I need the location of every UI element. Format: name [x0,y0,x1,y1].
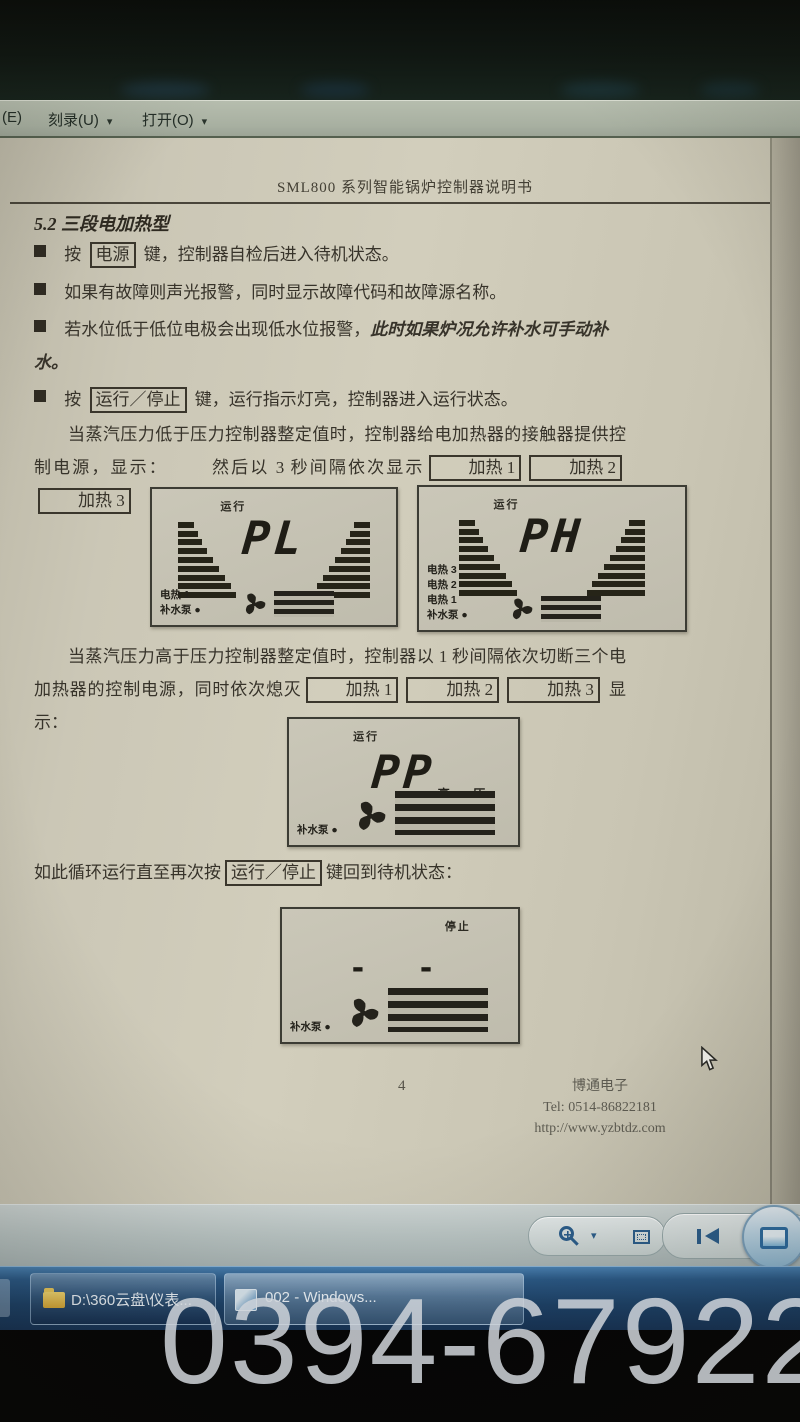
page-edge-shadow [772,138,800,1204]
water-level-bars-right [312,519,370,599]
page-number: 4 [398,1078,406,1095]
bullet-square-icon: ■ [34,283,46,295]
bullet-text: 键，控制器自检后进入待机状态。 [144,245,399,264]
feedpump-indicator: 补水泵 ● [290,1020,331,1035]
lcd-status-label: 运行 [353,728,379,744]
paragraph-loop: 如此循环运行直至再次按运行／停止键回到待机状态： [34,856,654,889]
fan-icon [344,994,382,1032]
menu-item-open-label: 打开(O) [142,112,194,129]
bullet-square-icon: ■ [34,320,46,332]
paragraph-text: 键回到待机状态： [326,863,462,882]
fan-icon [240,590,268,618]
bullet-line: ■ 如果有故障则声光报警，同时显示故障代码和故障源名称。 [34,276,620,309]
bullet-line: ■ 按 运行／停止 键，运行指示灯亮，控制器进入运行状态。 [34,383,620,416]
monitor-bezel-top [0,0,800,100]
taskbar-edge-item[interactable] [0,1279,10,1317]
zoom-dropdown-caret-icon[interactable]: ▾ [591,1229,597,1242]
viewer-toolbar: ▾ [0,1204,800,1266]
photo-of-monitor: (E) 刻录(U)▾ 打开(O)▾ SML800 系列智能锅炉控制器说明书 5.… [0,0,800,1422]
heat2-label: 加热 2 [406,677,499,703]
chevron-down-icon: ▾ [202,115,208,128]
company-tel: Tel: 0514-86822181 [480,1097,720,1118]
menu-item-open[interactable]: 打开(O)▾ [142,109,207,130]
bullet-line: ■ 若水位低于低位电极会出现低水位报警，此时如果炉况允许补水可手动补水。 [34,313,620,379]
feedpump-indicator: 补水泵 ● [427,608,468,623]
heater-louver-icon [388,988,488,1032]
heat1-label: 加热 1 [306,677,399,703]
heater2-indicator: 电热 2 [427,578,468,593]
bullet-text: 如果有故障则声光报警，同时显示故障代码和故障源名称。 [64,283,506,302]
menu-bar: (E) 刻录(U)▾ 打开(O)▾ [0,100,800,138]
slideshow-button[interactable] [742,1205,800,1269]
company-name: 博通电子 [480,1076,720,1097]
mouse-cursor [700,1046,718,1072]
menu-item-partial[interactable]: (E) [2,109,22,126]
heater-louver-icon [274,591,334,617]
zoom-in-icon[interactable] [559,1226,574,1241]
bullet-text: 按 [64,245,81,264]
paragraph-text: 如此循环运行直至再次按 [34,863,221,882]
lcd-panel-pl: 运行 PL 电热 1 补水泵 ● [150,487,398,627]
heater1-indicator: 电热 1 [427,593,468,608]
heater1-indicator: 电热 1 [160,588,201,603]
run-stop-key-label: 运行／停止 [225,860,322,886]
company-url: http://www.yzbtdz.com [480,1118,720,1139]
lcd-panel-pp: 运行 PP 高 压 补水泵 ● [287,717,520,847]
menu-item-burn-label: 刻录(U) [48,112,99,129]
company-footer: 博通电子 Tel: 0514-86822181 http://www.yzbtd… [480,1076,720,1139]
heater3-indicator: 电热 3 [427,563,468,578]
chevron-down-icon: ▾ [107,115,113,128]
document-viewer-canvas: SML800 系列智能锅炉控制器说明书 5.2 三段电加热型 ■ 按 电源 键，… [0,138,800,1204]
screen-reflection [560,82,640,98]
run-stop-key-label: 运行／停止 [90,387,187,413]
menu-item-burn[interactable]: 刻录(U)▾ [48,109,112,130]
previous-icon[interactable] [697,1228,723,1246]
heat2-label: 加热 2 [529,455,622,481]
bullet-text: 若水位低于低位电极会出现低水位报警， [64,320,370,339]
bullet-text: 键，运行指示灯亮，控制器进入运行状态。 [195,390,518,409]
lcd-indicator-labels: 电热 3 电热 2 电热 1 补水泵 ● [427,563,468,623]
screen-reflection [700,82,760,98]
bullet-square-icon: ■ [34,390,46,402]
feedpump-indicator: 补水泵 ● [160,603,201,618]
water-level-bars-left [178,519,236,599]
paragraph-text: 然后以 3 秒间隔依次显示 [210,458,425,477]
heat1-label: 加热 1 [429,455,522,481]
feedpump-indicator: 补水泵 ● [297,823,338,838]
zoom-controls-group: ▾ [528,1216,666,1256]
lcd-value: PH [417,509,688,563]
lcd-status-label: 停止 [445,918,471,934]
header-rule [10,202,772,204]
lcd-panel-ph: 运行 PH 电热 3 电热 2 电热 1 补水泵 ● [417,485,687,632]
lcd-indicator-labels: 补水泵 ● [290,1020,331,1035]
lcd-value: - - [282,951,518,986]
watermark-phone-number: 0394-6792297 [160,1280,800,1402]
screen-reflection [120,82,210,98]
display-screen-icon [760,1227,788,1249]
lcd-indicator-labels: 电热 1 补水泵 ● [160,588,201,618]
lcd-indicator-labels: 补水泵 ● [297,823,338,838]
fit-to-window-icon[interactable] [633,1230,650,1244]
document-title: SML800 系列智能锅炉控制器说明书 [85,176,725,197]
fan-icon [507,595,535,623]
fan-icon [351,797,389,835]
scanned-page: SML800 系列智能锅炉控制器说明书 5.2 三段电加热型 ■ 按 电源 键，… [0,138,772,1204]
section-heading: 5.2 三段电加热型 [34,210,169,236]
bullet-square-icon: ■ [34,245,46,257]
water-level-bars-right [587,517,645,597]
bullet-text: 按 [64,390,81,409]
heat3-label: 加热 3 [507,677,600,703]
lcd-panel-standby: 停止 - - 补水泵 ● [280,907,520,1044]
heater-louver-icon [395,791,495,835]
screen-reflection [300,82,370,98]
bullet-line: ■ 按 电源 键，控制器自检后进入待机状态。 [34,238,620,271]
heater-louver-icon [541,596,601,622]
heat3-label: 加热 3 [38,488,131,514]
power-key-label: 电源 [90,242,136,268]
folder-icon [43,1292,65,1308]
